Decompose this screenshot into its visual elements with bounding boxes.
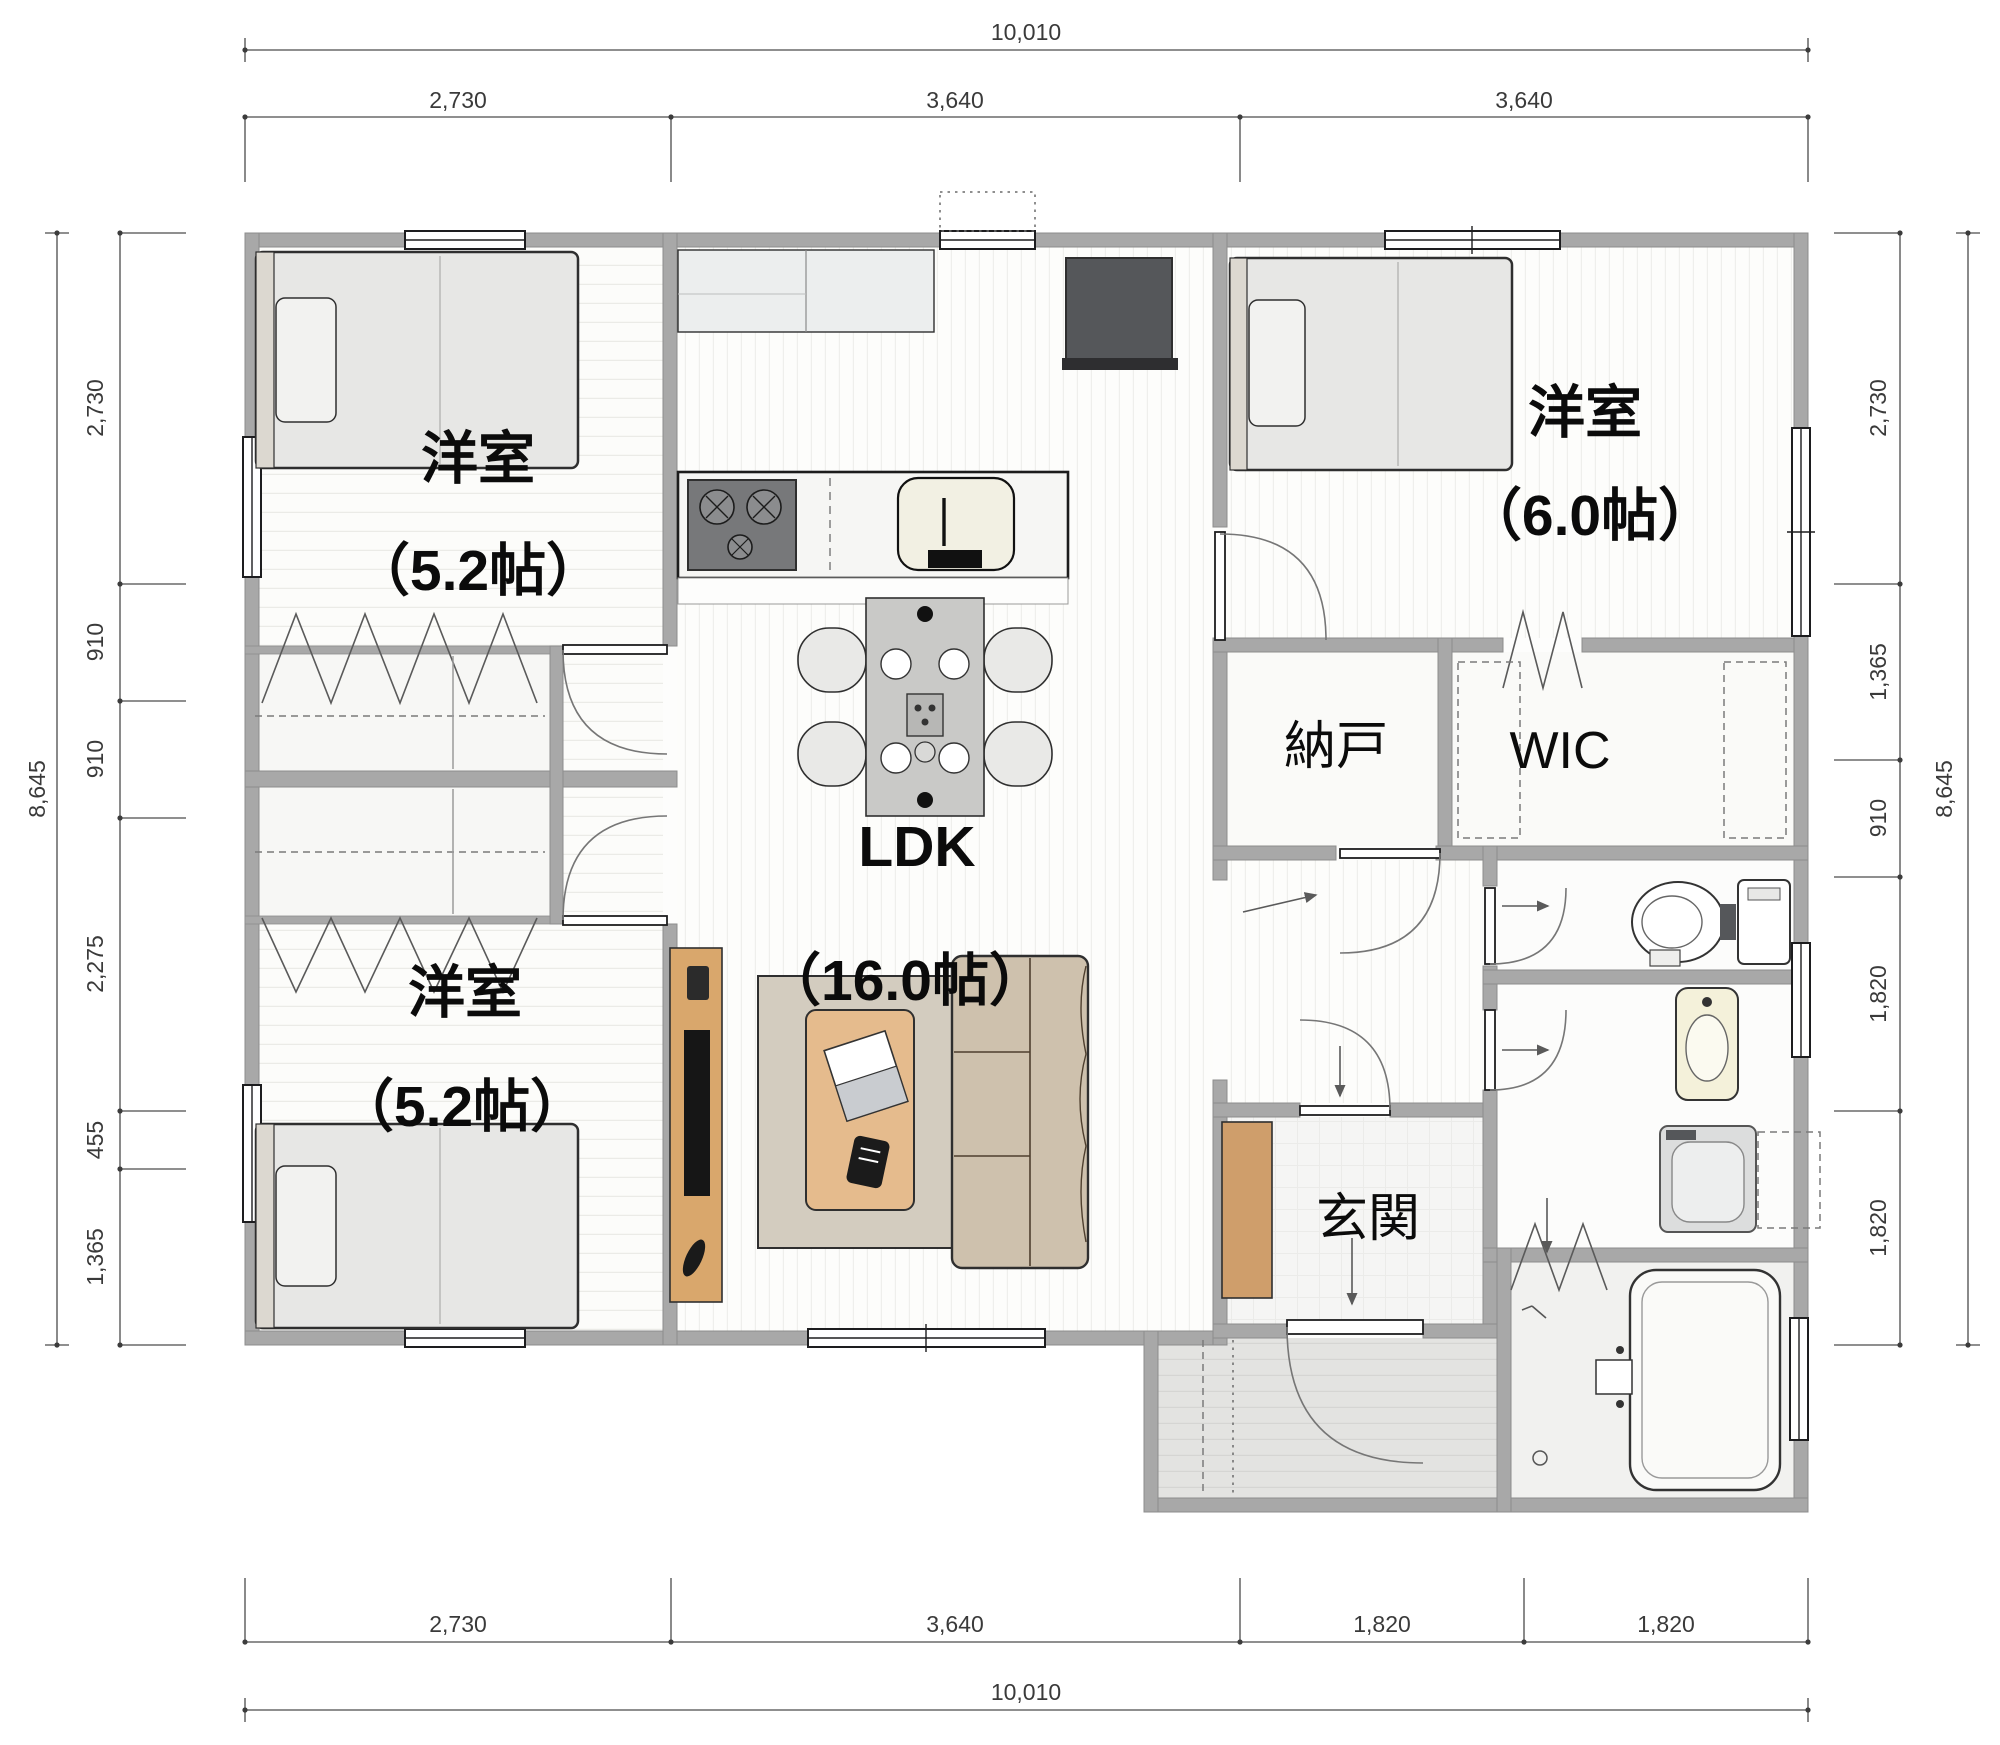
wall-closet-mid	[245, 771, 677, 787]
dim-right-total: 8,645	[1931, 760, 1957, 818]
floor-plan-svg: 洋室 （5.2帖） 洋室 （5.2帖） LDK （16.0帖） 洋室 （6.0帖…	[0, 0, 2000, 1745]
dim-right-seg2: 910	[1865, 799, 1891, 837]
wall-divider-right-a	[1213, 233, 1227, 527]
window-right-top-room	[1787, 428, 1815, 636]
dim-right-seg0: 2,730	[1865, 379, 1891, 437]
kitchen-sink-icon	[898, 478, 1014, 570]
bed-top-right	[1230, 258, 1512, 470]
label-entrance: 玄関	[1316, 1190, 1420, 1248]
porch-floor	[1158, 1338, 1497, 1498]
dim-right-seg3: 1,820	[1865, 965, 1891, 1023]
wall-storage-bottom-a	[1213, 846, 1336, 860]
label-bedroom-top-left-size: （5.2帖）	[353, 539, 603, 603]
wic-floor	[1452, 652, 1794, 846]
dim-right: 2,730 1,365 910 1,820 1,820 8,645	[1834, 230, 1980, 1347]
dim-bottom-seg2: 1,820	[1353, 1611, 1411, 1637]
dim-bottom: 2,730 3,640 1,820 1,820 10,010	[242, 1578, 1810, 1722]
av-device	[687, 966, 709, 1000]
wall-toilet-washroom	[1483, 970, 1808, 984]
shoe-cabinet	[1222, 1122, 1272, 1298]
wall-divider-right-b	[1213, 640, 1227, 880]
window-bottom-left-room	[405, 1329, 525, 1347]
dim-left-seg3: 2,275	[82, 935, 108, 993]
dim-left-total: 8,645	[24, 760, 50, 818]
dim-top-seg0: 2,730	[429, 87, 487, 113]
dim-left: 8,645 2,730 910 910 2,275 455 1,365	[24, 230, 186, 1347]
dim-left-seg5: 1,365	[82, 1228, 108, 1286]
label-bedroom-bottom-left-size: （5.2帖）	[337, 1075, 587, 1139]
wall-hall-entrance-b	[1390, 1103, 1483, 1117]
dining-chair	[984, 628, 1052, 692]
wall-closet-vert	[550, 646, 563, 924]
label-ldk: LDK	[858, 815, 975, 879]
dim-top-seg2: 3,640	[1495, 87, 1553, 113]
dim-bottom-seg3: 1,820	[1637, 1611, 1695, 1637]
wall-washroom-bath	[1483, 1248, 1808, 1262]
label-bedroom-top-right-size: （6.0帖）	[1465, 484, 1715, 548]
label-bedroom-bottom-left: 洋室	[408, 961, 522, 1025]
closet-upper-floor	[259, 654, 550, 771]
washbasin-icon	[1676, 988, 1738, 1100]
dim-right-seg1: 1,365	[1865, 643, 1891, 701]
wall-hall-entrance-a	[1213, 1103, 1300, 1117]
kitchen-vent-dashed-box	[940, 192, 1035, 231]
label-ldk-size: （16.0帖）	[764, 949, 1046, 1013]
floor-plan-page: 洋室 （5.2帖） 洋室 （5.2帖） LDK （16.0帖） 洋室 （6.0帖…	[0, 0, 2000, 1745]
wall-wet-divider-a	[1483, 846, 1497, 886]
wall-divider-left-a	[663, 233, 677, 646]
wall-closet-top	[245, 646, 550, 654]
refrigerator	[1062, 258, 1178, 370]
wall-storage-top-a	[1213, 638, 1503, 652]
kitchen-cabinet	[678, 250, 934, 332]
wall-storage-wic-divider	[1438, 638, 1452, 860]
dim-top-seg1: 3,640	[926, 87, 984, 113]
wall-bath-left	[1497, 1248, 1511, 1512]
hallway-floor	[1227, 860, 1483, 1103]
dining-chair	[798, 722, 866, 786]
dim-left-seg0: 2,730	[82, 379, 108, 437]
wall-wet-divider-c	[1483, 1090, 1497, 1338]
dining-chair	[798, 628, 866, 692]
wall-bottom-main	[245, 1331, 1227, 1345]
tv-board	[670, 948, 722, 1302]
bath-counter	[1596, 1360, 1632, 1394]
bed-bottom-left	[256, 1124, 578, 1328]
dim-right-seg4: 1,820	[1865, 1199, 1891, 1257]
dim-top: 10,010 2,730 3,640 3,640	[242, 19, 1810, 182]
dim-bottom-total: 10,010	[991, 1679, 1061, 1705]
dim-bottom-seg0: 2,730	[429, 1611, 487, 1637]
window-bath	[1790, 1318, 1808, 1440]
tv-icon	[684, 1030, 710, 1196]
dim-bottom-seg1: 3,640	[926, 1611, 984, 1637]
refrigerator-base	[1062, 358, 1178, 370]
window-ldk-sliding	[808, 1324, 1045, 1352]
label-storage: 納戸	[1284, 718, 1388, 776]
wall-entrance-bottom-a	[1213, 1324, 1287, 1338]
wall-bottom-far	[1144, 1498, 1808, 1512]
gas-stove-icon	[688, 480, 796, 570]
wall-porch-left	[1144, 1331, 1158, 1512]
window-washroom	[1792, 943, 1810, 1057]
kitchen-island	[678, 472, 1068, 604]
label-bedroom-top-right: 洋室	[1528, 381, 1642, 445]
dining-chair	[984, 722, 1052, 786]
window-kitchen	[940, 192, 1035, 249]
wall-entrance-bottom-b	[1423, 1324, 1497, 1338]
label-bedroom-top-left: 洋室	[421, 427, 535, 491]
dim-left-seg2: 910	[82, 740, 108, 778]
window-top-right-room	[1385, 226, 1560, 254]
dim-left-seg1: 910	[82, 623, 108, 661]
label-wic: WIC	[1509, 722, 1610, 780]
wall-storage-top-b	[1582, 638, 1794, 652]
window-top-left-room	[405, 231, 525, 249]
dim-top-total: 10,010	[991, 19, 1061, 45]
dim-left-seg4: 455	[82, 1121, 108, 1159]
